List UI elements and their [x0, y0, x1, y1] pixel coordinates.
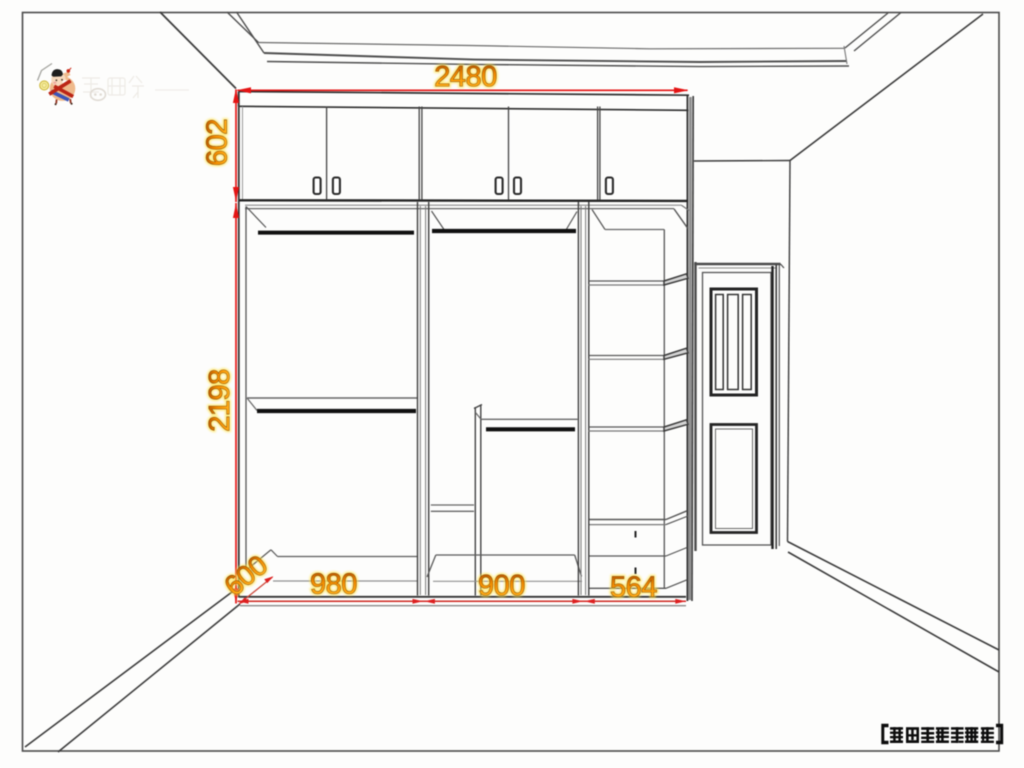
svg-text:602: 602: [202, 119, 234, 166]
svg-text:900: 900: [478, 570, 525, 602]
svg-text:2480: 2480: [434, 61, 497, 93]
svg-text:2198: 2198: [204, 369, 236, 432]
svg-text:980: 980: [310, 569, 357, 601]
svg-text:564: 564: [610, 572, 657, 604]
